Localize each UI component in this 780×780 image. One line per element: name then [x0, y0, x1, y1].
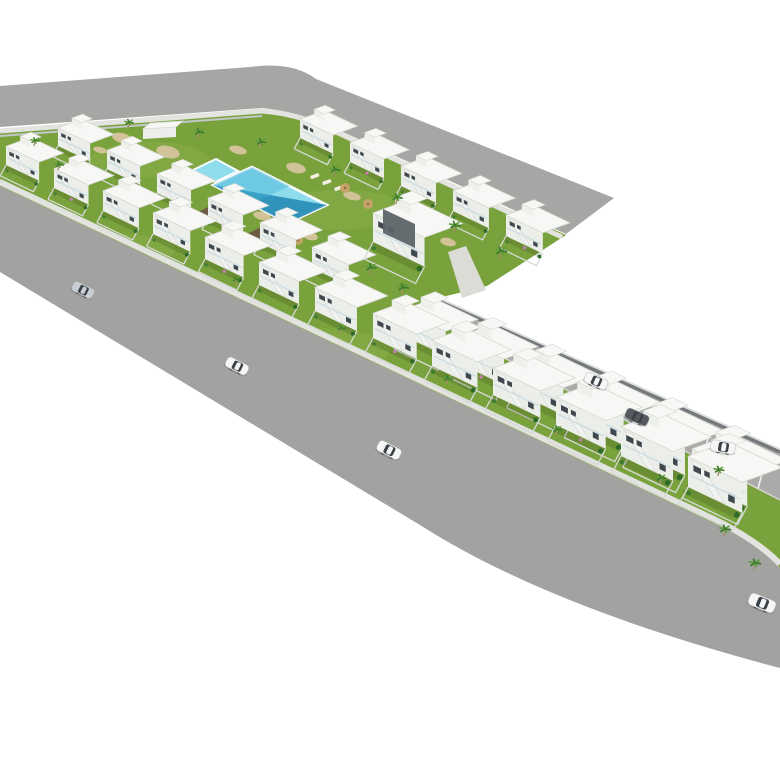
shrub [665, 480, 670, 485]
shrub [328, 155, 331, 158]
shrub [537, 255, 541, 259]
bougainvillea [479, 375, 482, 378]
shrub [185, 253, 189, 257]
shrub [6, 170, 9, 173]
shrub [410, 359, 415, 364]
shrub [620, 460, 624, 464]
bougainvillea [365, 171, 368, 174]
bougainvillea [223, 270, 226, 273]
bougainvillea [70, 198, 73, 201]
shrub [372, 342, 376, 346]
parasol [363, 199, 373, 209]
shrub [379, 180, 383, 184]
site-plan-render [0, 0, 780, 780]
shrub [417, 266, 422, 271]
shrub [471, 388, 476, 393]
shrub [300, 143, 303, 146]
shrub [258, 289, 261, 292]
shrub [687, 491, 691, 495]
shrub [204, 263, 207, 266]
shrub [505, 240, 508, 243]
shrub [238, 278, 242, 282]
bougainvillea [393, 350, 396, 353]
shrub [533, 417, 538, 422]
shrub [598, 448, 603, 453]
bougainvillea [579, 438, 582, 441]
shrub [616, 445, 621, 450]
shrub [734, 512, 740, 518]
shrub [372, 246, 376, 250]
shrub [293, 305, 297, 309]
shrub [677, 475, 683, 481]
shrub [453, 216, 456, 219]
shrub [54, 193, 57, 196]
shrub [152, 238, 155, 241]
shrub [84, 206, 88, 210]
shrub [34, 182, 37, 185]
shrub [431, 204, 435, 208]
shrub [314, 315, 317, 318]
parasol [340, 183, 350, 193]
shrub [401, 191, 404, 194]
render-canvas [0, 0, 780, 780]
shrub [492, 399, 496, 403]
shrub [351, 331, 355, 335]
shrub [484, 229, 488, 233]
bougainvillea [523, 246, 526, 249]
shrub [103, 216, 106, 219]
shrub [350, 167, 353, 170]
shrub [134, 229, 138, 233]
shrub [431, 370, 435, 374]
